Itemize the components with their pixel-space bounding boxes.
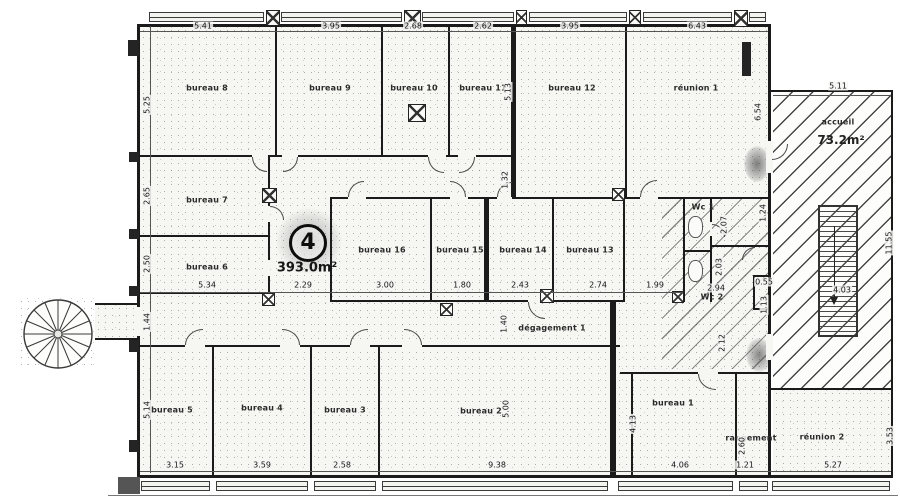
room-label-bureau-14: bureau 14 xyxy=(499,246,547,255)
pier xyxy=(440,303,453,316)
wall xyxy=(552,197,554,302)
dimension-label: 2.68 xyxy=(403,22,423,31)
wall xyxy=(310,345,312,478)
dimension-label: 2.58 xyxy=(332,461,352,470)
room-label-wc-1: Wc 1 xyxy=(692,203,715,212)
dimension-label: 4.06 xyxy=(670,461,690,470)
wall xyxy=(430,197,432,302)
room-label-dégagement-1: dégagement 1 xyxy=(518,324,585,333)
window-band xyxy=(149,12,264,22)
wall xyxy=(381,24,383,157)
wall xyxy=(330,300,625,302)
wall xyxy=(95,303,139,305)
room-label-bureau-8: bureau 8 xyxy=(186,84,228,93)
pier xyxy=(734,10,748,27)
room-label-bureau-11: bureau 11 xyxy=(459,84,507,93)
room-label-bureau-16: bureau 16 xyxy=(358,246,406,255)
dimension-label: 5.11 xyxy=(828,82,848,91)
wall xyxy=(137,235,270,237)
dimension-line xyxy=(140,471,891,472)
dimension-label: 5.41 xyxy=(193,22,213,31)
wall xyxy=(620,372,770,374)
dimension-label: 2.43 xyxy=(510,281,530,290)
wall xyxy=(484,197,489,302)
dimension-label: 5.13 xyxy=(504,82,513,102)
door-opening xyxy=(766,334,773,360)
wall xyxy=(330,197,332,302)
wall xyxy=(625,24,627,199)
window-band xyxy=(314,481,376,491)
wall xyxy=(623,197,625,302)
door-opening xyxy=(348,197,366,199)
dimension-label: 1.24 xyxy=(759,203,768,223)
pier xyxy=(266,10,280,26)
wall xyxy=(710,245,770,247)
pier xyxy=(629,10,641,25)
dimension-label: 2.62 xyxy=(473,22,493,31)
dimension-label: 2.94 xyxy=(706,284,726,293)
wall-pier xyxy=(129,340,139,352)
dimension-label: 11.55 xyxy=(885,231,894,256)
window-band xyxy=(618,481,733,491)
window-band xyxy=(382,481,608,491)
wall xyxy=(683,250,712,252)
wall xyxy=(212,345,214,478)
door-opening xyxy=(280,345,300,347)
floor-plan: 4 393.0m² 73.2m² bureau 8bureau 9bureau … xyxy=(0,0,900,500)
dimension-label: 2.12 xyxy=(718,333,727,353)
dimension-label: 2.50 xyxy=(143,254,152,274)
door-opening xyxy=(137,307,140,336)
dimension-label: 6.54 xyxy=(754,102,763,122)
ground-line xyxy=(108,495,898,496)
room-label-bureau-13: bureau 13 xyxy=(566,246,614,255)
dimension-label: 1.40 xyxy=(500,314,509,334)
wall xyxy=(330,197,770,199)
door-opening xyxy=(268,260,270,276)
wall-pier xyxy=(118,477,140,494)
door-opening xyxy=(350,345,370,347)
door-opening xyxy=(450,197,468,199)
dimension-line xyxy=(773,95,891,96)
door-opening xyxy=(497,197,512,199)
dimension-line xyxy=(140,31,768,32)
window-band xyxy=(281,12,402,22)
dimension-label: 2.65 xyxy=(143,186,152,206)
window-band xyxy=(739,481,768,491)
pier xyxy=(516,10,527,25)
door-opening xyxy=(640,197,658,199)
dimension-label: 1.99 xyxy=(645,281,665,290)
dimension-label: 3.95 xyxy=(560,22,580,31)
spiral-staircase-icon xyxy=(20,296,96,372)
pier xyxy=(408,104,426,122)
wall xyxy=(610,300,616,478)
wall xyxy=(137,475,893,478)
wall xyxy=(683,197,685,302)
room-label-bureau-4: bureau 4 xyxy=(241,404,283,413)
room-label-bureau-15: bureau 15 xyxy=(436,246,484,255)
pier xyxy=(262,188,277,203)
dimension-label: 1.44 xyxy=(143,312,152,332)
window-band xyxy=(216,481,308,491)
dimension-line xyxy=(140,292,683,293)
room-label-wc-2: Wc 2 xyxy=(701,293,724,302)
stair-corridor xyxy=(95,305,139,338)
door-opening xyxy=(185,345,205,347)
dimension-label: 1.21 xyxy=(735,461,755,470)
dimension-label: 5.25 xyxy=(143,95,152,115)
dimension-label: 3.59 xyxy=(252,461,272,470)
wall-pier xyxy=(129,229,139,239)
room-label-réunion-2: réunion 2 xyxy=(800,433,845,442)
wall-pier xyxy=(129,152,139,162)
dimension-label: 5.34 xyxy=(197,281,217,290)
dimension-label: 4.03 xyxy=(832,286,852,295)
window-band xyxy=(772,481,890,491)
wall-pier xyxy=(128,40,139,56)
pier xyxy=(612,188,625,201)
stair-arrowhead xyxy=(830,297,838,305)
dimension-label: 2.29 xyxy=(293,281,313,290)
toilet-fixture xyxy=(688,216,703,238)
wall-pier xyxy=(129,286,139,296)
wall xyxy=(771,388,893,390)
door-opening xyxy=(402,345,422,347)
wall-pier xyxy=(129,440,139,452)
dimension-label: 1.80 xyxy=(452,281,472,290)
window-band xyxy=(529,12,627,22)
wall xyxy=(378,345,380,478)
wall xyxy=(137,24,140,478)
window-band xyxy=(643,12,732,22)
dimension-label: 2.74 xyxy=(588,281,608,290)
unit-number-badge: 4 xyxy=(289,224,327,262)
window-band xyxy=(749,12,766,22)
room-label-réunion-1: réunion 1 xyxy=(674,84,719,93)
dimension-label: 2.60 xyxy=(738,436,747,456)
wall xyxy=(768,24,771,478)
room-label-bureau-7: bureau 7 xyxy=(186,196,228,205)
room-label-bureau-6: bureau 6 xyxy=(186,263,228,272)
dimension-label: 3.00 xyxy=(375,281,395,290)
pier xyxy=(262,293,275,306)
wall xyxy=(511,24,516,199)
room-label-rangement: rangement xyxy=(725,434,776,443)
wall xyxy=(137,24,770,27)
dimension-label: 2.03 xyxy=(715,257,724,277)
room-label-accueil: accueil xyxy=(822,118,855,127)
dimension-label: 3.15 xyxy=(165,461,185,470)
room-label-bureau-5: bureau 5 xyxy=(151,406,193,415)
dimension-label: 1.13 xyxy=(760,295,769,315)
wall xyxy=(891,90,893,478)
toilet-fixture xyxy=(688,260,703,282)
room-label-bureau-10: bureau 10 xyxy=(390,84,438,93)
room-label-bureau-9: bureau 9 xyxy=(309,84,351,93)
window-band xyxy=(422,12,514,22)
room-label-bureau-12: bureau 12 xyxy=(548,84,596,93)
unit-area-label: 393.0m² xyxy=(277,261,337,276)
dimension-label: 1.32 xyxy=(501,170,510,190)
window-band xyxy=(141,481,210,491)
wall-pier xyxy=(742,42,751,76)
dimension-label: 4.13 xyxy=(629,414,638,434)
dimension-label: 3.53 xyxy=(886,426,895,446)
dimension-label: 0.55 xyxy=(754,278,774,287)
dimension-label: 5.27 xyxy=(823,461,843,470)
dimension-label: 9.38 xyxy=(487,461,507,470)
wall xyxy=(448,24,450,157)
dimension-label: 5.00 xyxy=(502,399,511,419)
room-label-bureau-2: bureau 2 xyxy=(460,407,502,416)
dimension-label: 2.07 xyxy=(720,215,729,235)
dimension-label: 3.95 xyxy=(321,22,341,31)
dimension-label: 6.43 xyxy=(687,22,707,31)
dimension-label: 5.14 xyxy=(143,400,152,420)
accueil-area-label: 73.2m² xyxy=(817,133,864,147)
wall xyxy=(275,24,277,157)
staircase xyxy=(818,205,858,337)
room-label-bureau-1: bureau 1 xyxy=(652,399,694,408)
room-label-bureau-3: bureau 3 xyxy=(324,406,366,415)
